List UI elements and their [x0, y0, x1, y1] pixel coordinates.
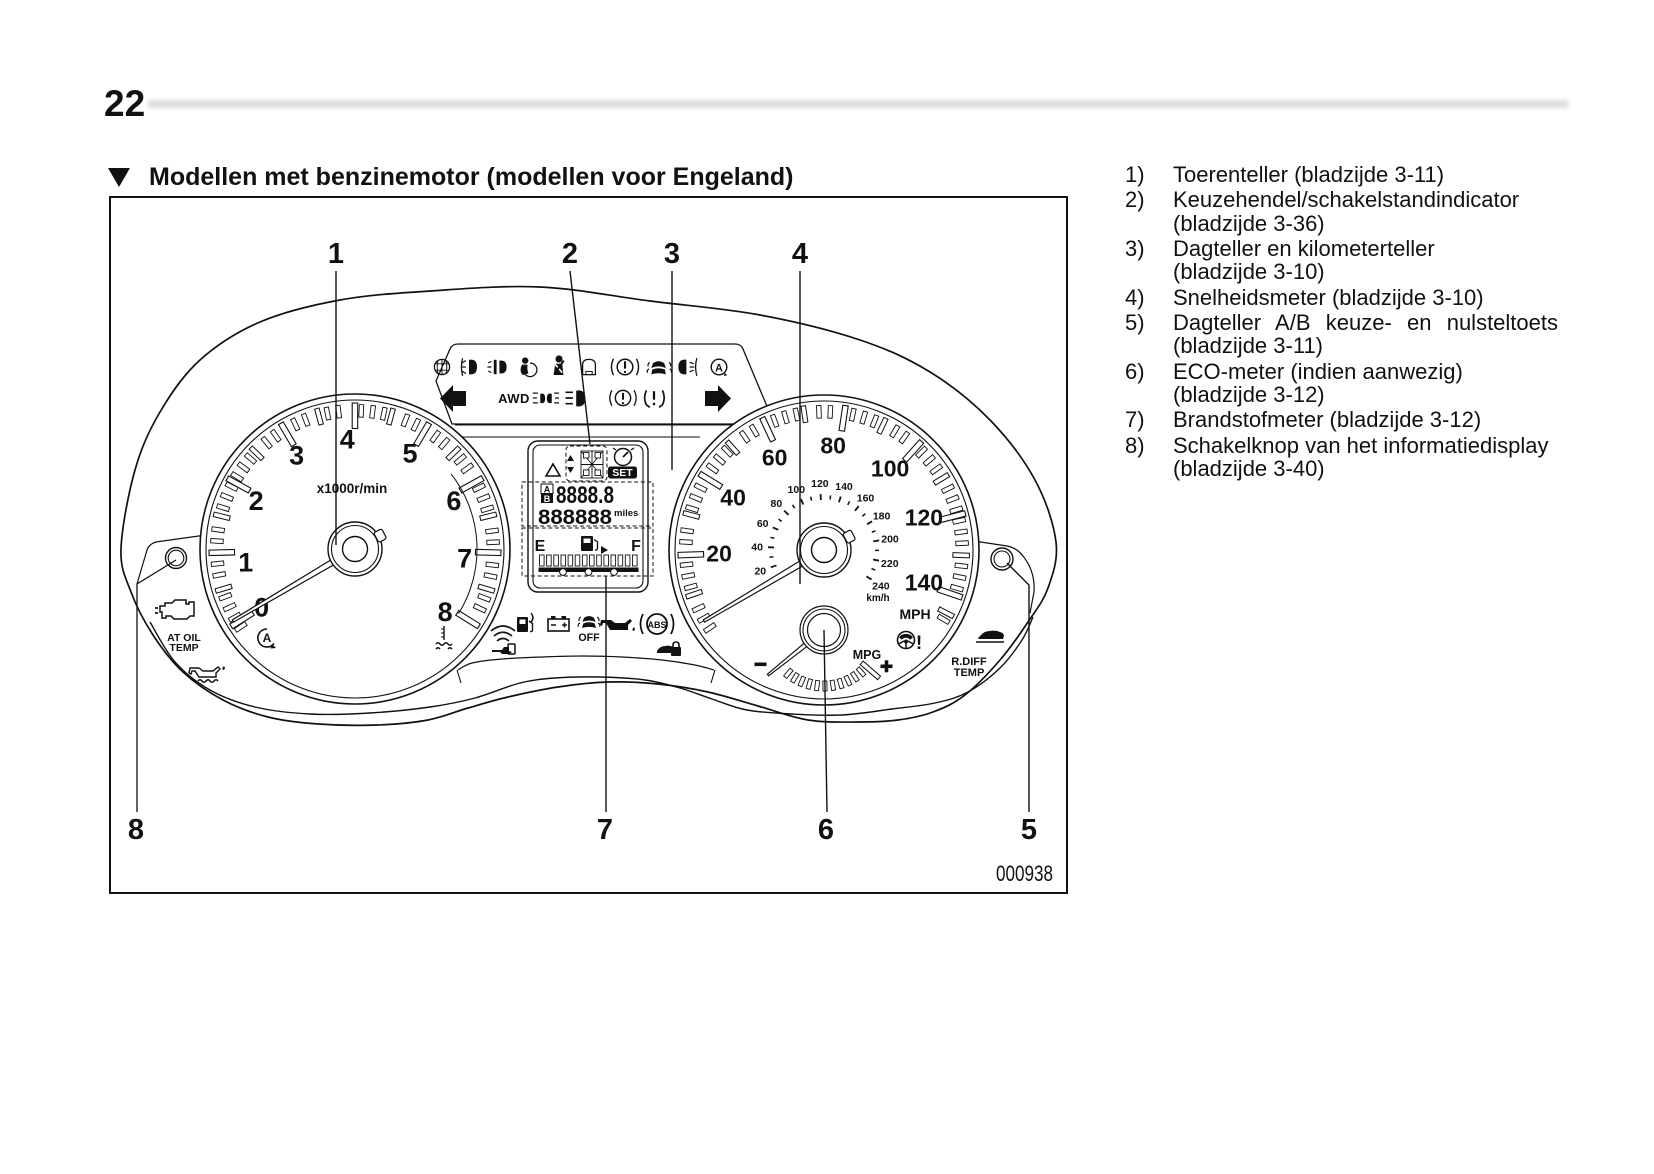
svg-text:MPH: MPH — [899, 606, 930, 622]
svg-text:220: 220 — [881, 558, 899, 570]
svg-text:3: 3 — [289, 441, 304, 471]
svg-text:4: 4 — [340, 424, 355, 454]
svg-text:TEMP: TEMP — [954, 667, 985, 679]
svg-text:140: 140 — [905, 569, 943, 595]
svg-text:000938: 000938 — [996, 861, 1053, 886]
svg-text:888888: 888888 — [538, 506, 612, 529]
svg-text:8: 8 — [128, 814, 144, 846]
svg-text:2: 2 — [249, 486, 264, 516]
svg-text:A: A — [544, 485, 551, 495]
svg-text:40: 40 — [720, 485, 746, 511]
svg-text:TEMP: TEMP — [169, 642, 198, 654]
svg-text:80: 80 — [820, 432, 846, 458]
svg-text:!: ! — [916, 633, 922, 654]
svg-text:ABS: ABS — [647, 620, 666, 630]
svg-text:5: 5 — [402, 439, 417, 469]
svg-text:200: 200 — [881, 534, 899, 546]
svg-text:240: 240 — [872, 580, 890, 592]
svg-text:5: 5 — [1021, 814, 1037, 846]
svg-text:8888.8: 8888.8 — [556, 482, 614, 509]
svg-text:OFF: OFF — [578, 632, 600, 644]
svg-text:miles: miles — [614, 508, 638, 519]
svg-text:3: 3 — [664, 238, 680, 270]
svg-text:8: 8 — [438, 597, 453, 627]
svg-text:B: B — [544, 494, 551, 504]
svg-text:SET: SET — [612, 467, 633, 479]
svg-text:7: 7 — [597, 814, 613, 846]
svg-text:7: 7 — [457, 544, 472, 574]
svg-text:140: 140 — [835, 481, 853, 493]
svg-text:120: 120 — [905, 505, 943, 531]
svg-text:60: 60 — [757, 518, 769, 530]
svg-text:x1000r/min: x1000r/min — [317, 481, 388, 496]
svg-text:F: F — [631, 538, 641, 555]
svg-text:20: 20 — [706, 541, 732, 567]
svg-text:100: 100 — [788, 484, 806, 496]
svg-text:km/h: km/h — [866, 593, 889, 604]
svg-text:120: 120 — [811, 478, 829, 490]
svg-text:6: 6 — [446, 486, 461, 516]
svg-text:E: E — [535, 538, 546, 555]
svg-text:1: 1 — [328, 238, 344, 270]
svg-text:6: 6 — [818, 814, 834, 846]
svg-text:80: 80 — [771, 498, 783, 510]
svg-text:100: 100 — [871, 455, 909, 481]
svg-text:60: 60 — [762, 444, 788, 470]
svg-text:180: 180 — [873, 511, 891, 523]
svg-text:A: A — [715, 363, 723, 375]
svg-text:MPG: MPG — [853, 648, 881, 662]
svg-text:40: 40 — [751, 542, 763, 554]
svg-text:4: 4 — [792, 238, 808, 270]
svg-text:160: 160 — [857, 492, 875, 504]
svg-text:AWD: AWD — [498, 391, 530, 406]
svg-text:2: 2 — [562, 238, 578, 270]
svg-text:A: A — [263, 631, 272, 645]
svg-text:1: 1 — [238, 547, 253, 577]
svg-text:20: 20 — [754, 566, 766, 578]
